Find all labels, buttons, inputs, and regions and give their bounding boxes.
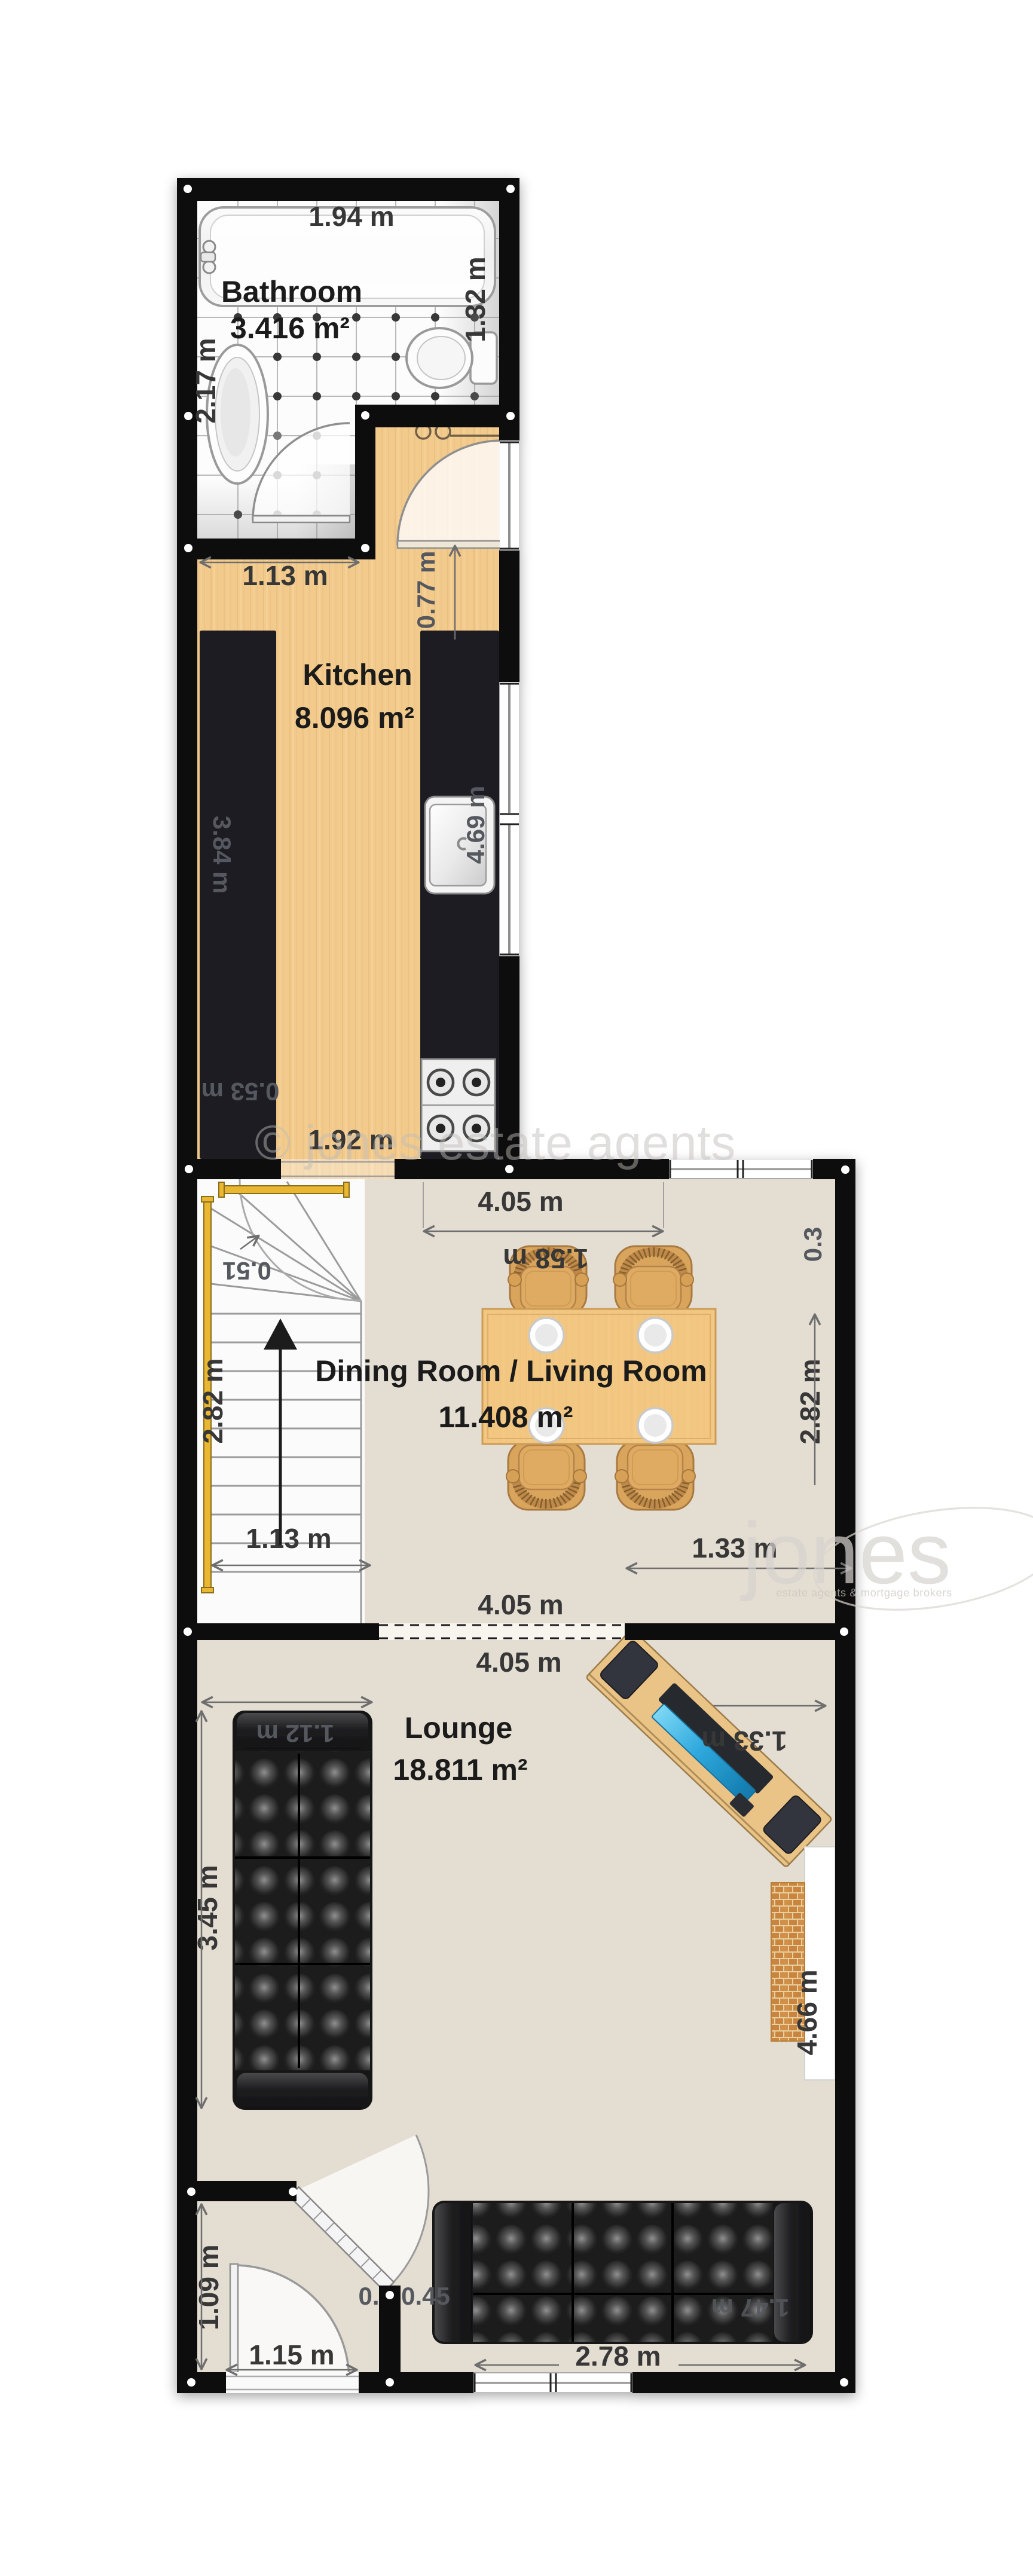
svg-text:1.15 m: 1.15 m xyxy=(249,2339,334,2370)
svg-text:1.12 m: 1.12 m xyxy=(256,1720,335,1748)
svg-text:8.096 m²: 8.096 m² xyxy=(295,701,414,735)
svg-text:Bathroom: Bathroom xyxy=(221,275,362,308)
svg-text:3.45 m: 3.45 m xyxy=(192,1865,223,1950)
svg-text:0.53 m: 0.53 m xyxy=(201,1078,280,1106)
svg-text:4.66 m: 4.66 m xyxy=(791,1969,823,2055)
svg-text:0.77 m: 0.77 m xyxy=(412,551,440,629)
svg-text:11.408 m²: 11.408 m² xyxy=(438,1400,573,1434)
svg-text:1.47 m: 1.47 m xyxy=(711,2294,790,2322)
svg-text:2.82 m: 2.82 m xyxy=(794,1359,826,1444)
svg-text:Kitchen: Kitchen xyxy=(302,658,412,692)
svg-text:1.32 m: 1.32 m xyxy=(460,256,491,342)
svg-text:4.05 m: 4.05 m xyxy=(476,1647,561,1678)
svg-text:4.05 m: 4.05 m xyxy=(478,1186,563,1217)
svg-text:4.05 m: 4.05 m xyxy=(478,1589,563,1620)
svg-text:1.13 m: 1.13 m xyxy=(242,560,328,591)
svg-text:1.94 m: 1.94 m xyxy=(308,201,394,232)
svg-text:3.84 m: 3.84 m xyxy=(208,816,236,894)
svg-text:1.58 m: 1.58 m xyxy=(503,1243,588,1274)
svg-text:2.82 m: 2.82 m xyxy=(197,1358,228,1443)
svg-text:18.811 m²: 18.811 m² xyxy=(393,1753,527,1786)
svg-text:1.13 m: 1.13 m xyxy=(246,1523,331,1554)
svg-text:estate agents & mortgage broke: estate agents & mortgage brokers xyxy=(776,1586,952,1599)
svg-text:Lounge: Lounge xyxy=(405,1711,513,1745)
svg-text:0.: 0. xyxy=(358,2282,379,2310)
svg-text:0.45: 0.45 xyxy=(401,2282,450,2310)
svg-text:© jones estate agents: © jones estate agents xyxy=(255,1116,736,1170)
svg-text:4.69 m: 4.69 m xyxy=(462,786,490,864)
svg-text:2.17 m: 2.17 m xyxy=(190,338,221,423)
svg-text:0.51: 0.51 xyxy=(222,1257,271,1285)
svg-text:1.09 m: 1.09 m xyxy=(193,2244,224,2330)
svg-text:Dining Room / Living Room: Dining Room / Living Room xyxy=(315,1354,707,1388)
svg-text:3.416 m²: 3.416 m² xyxy=(230,311,350,345)
svg-text:2.78 m: 2.78 m xyxy=(575,2341,661,2372)
svg-text:1.33 m: 1.33 m xyxy=(701,1726,787,1757)
svg-text:0.3: 0.3 xyxy=(799,1227,827,1262)
